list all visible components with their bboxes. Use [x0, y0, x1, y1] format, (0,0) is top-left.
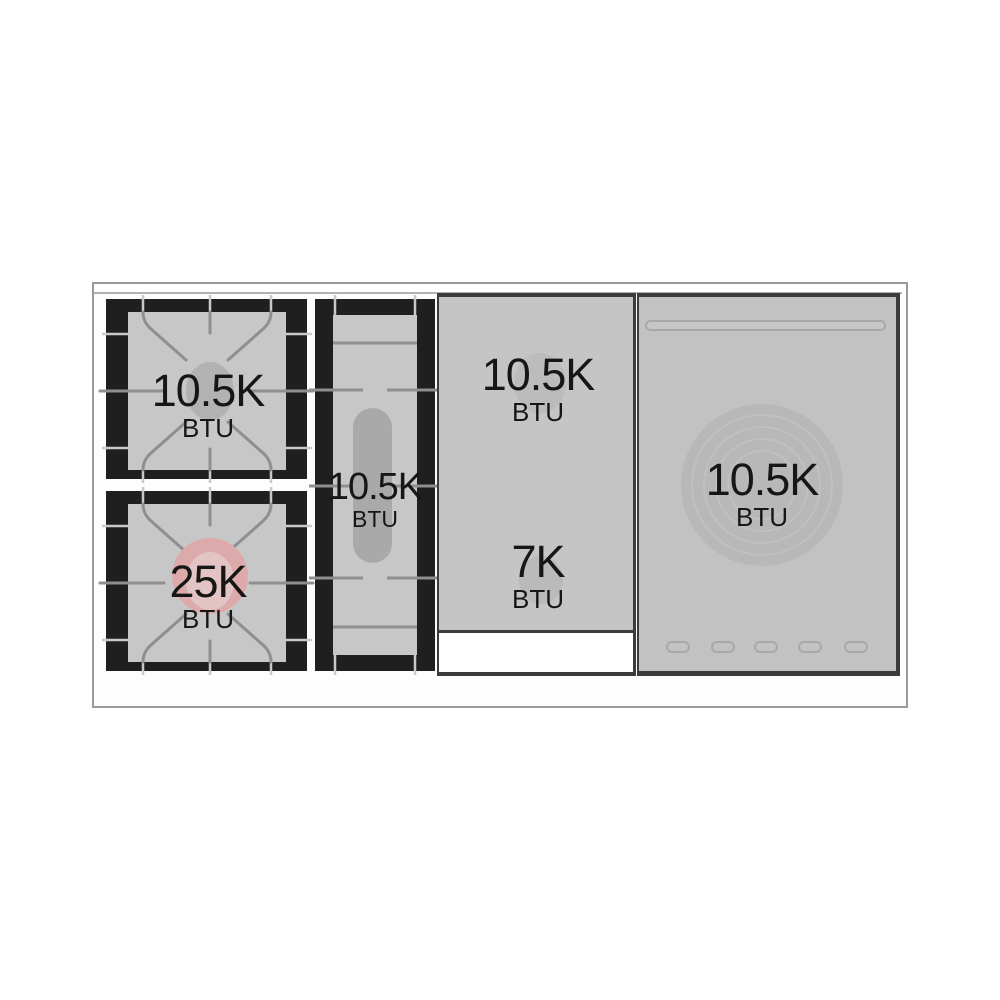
burner-shadow-front	[519, 556, 563, 604]
burner-cap	[186, 552, 234, 610]
vent-slot	[666, 641, 690, 653]
french-top-section	[637, 293, 900, 676]
burner-cap	[186, 362, 234, 420]
french-plaque-rings	[680, 403, 844, 567]
vent-slot	[754, 641, 778, 653]
burner-shadow-back	[514, 353, 566, 413]
griddle-section	[437, 293, 636, 676]
handle-bar	[645, 320, 886, 331]
burner-grate-graphic	[106, 299, 307, 479]
vent-slot	[711, 641, 735, 653]
burner-grate-graphic	[315, 299, 435, 671]
burner-unit-center	[315, 299, 435, 671]
burner-unit-top-left	[106, 299, 307, 479]
burner-unit-bottom-left	[106, 491, 307, 671]
plaque-disc	[681, 404, 843, 566]
rangetop-diagram: 10.5K BTU 25K BTU 10.5K BTU 10.5K BTU 7K…	[0, 0, 1000, 1000]
griddle-plate	[439, 297, 633, 633]
burner-grate-graphic	[106, 491, 307, 671]
vent-slot	[798, 641, 822, 653]
oval-burner-cap	[353, 408, 392, 563]
vent-slot	[844, 641, 868, 653]
